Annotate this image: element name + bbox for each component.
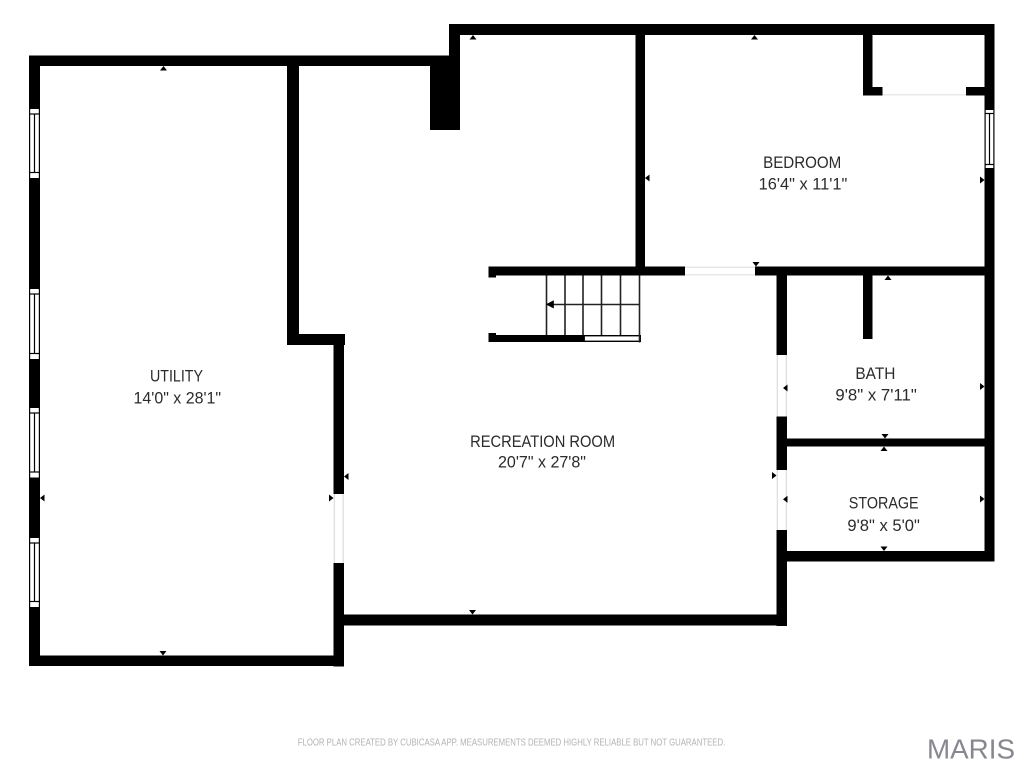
svg-text:9'8" x 5'0": 9'8" x 5'0" <box>847 516 920 535</box>
svg-text:14'0" x 28'1": 14'0" x 28'1" <box>134 389 222 408</box>
svg-text:16'4" x 11'1": 16'4" x 11'1" <box>759 175 848 194</box>
svg-text:20'7" x 27'8": 20'7" x 27'8" <box>498 452 586 471</box>
svg-text:BATH: BATH <box>855 364 895 383</box>
svg-text:BEDROOM: BEDROOM <box>763 153 841 172</box>
svg-text:9'8" x 7'11": 9'8" x 7'11" <box>835 385 916 404</box>
svg-text:RECREATION ROOM: RECREATION ROOM <box>470 432 615 451</box>
svg-text:MARIS: MARIS <box>927 734 1015 765</box>
svg-text:FLOOR PLAN CREATED BY CUBICASA: FLOOR PLAN CREATED BY CUBICASA APP. MEAS… <box>298 737 726 749</box>
svg-text:STORAGE: STORAGE <box>849 494 919 513</box>
svg-text:UTILITY: UTILITY <box>150 367 203 386</box>
